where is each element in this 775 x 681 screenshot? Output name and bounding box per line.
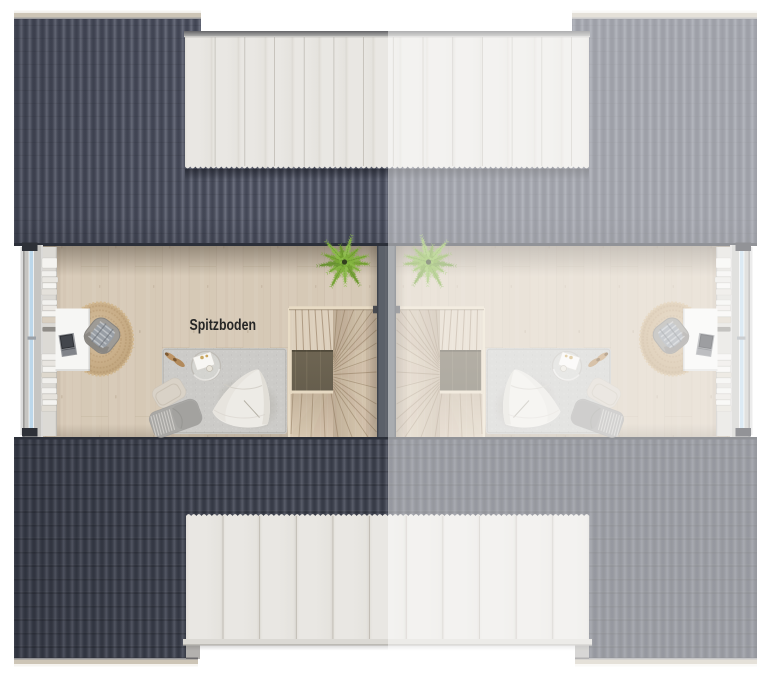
- svg-text:Spitzboden: Spitzboden: [190, 317, 257, 334]
